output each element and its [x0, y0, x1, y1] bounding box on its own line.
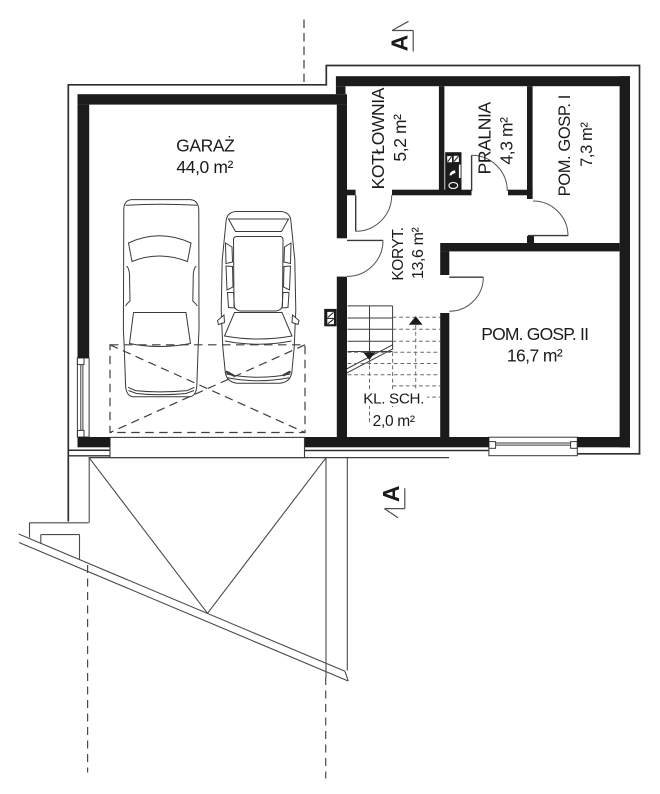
- svg-text:GARAŻ: GARAŻ: [176, 135, 235, 155]
- svg-text:KL. SCH.: KL. SCH.: [363, 391, 424, 408]
- svg-text:A: A: [378, 485, 404, 502]
- svg-text:KOTŁOWNIA: KOTŁOWNIA: [368, 87, 388, 189]
- svg-text:POM. GOSP. II: POM. GOSP. II: [481, 324, 588, 344]
- svg-text:5,2 m²: 5,2 m²: [390, 114, 410, 162]
- svg-text:A: A: [386, 35, 412, 52]
- svg-text:44,0 m²: 44,0 m²: [176, 157, 233, 177]
- svg-text:7,3 m²: 7,3 m²: [578, 122, 596, 167]
- svg-text:16,7 m²: 16,7 m²: [507, 346, 563, 366]
- svg-text:4,3 m²: 4,3 m²: [496, 117, 516, 165]
- svg-text:13,6 m²: 13,6 m²: [410, 227, 427, 280]
- svg-text:2,0 m²: 2,0 m²: [373, 413, 415, 430]
- svg-text:KORYT.: KORYT.: [390, 227, 407, 280]
- svg-text:PRALNIA: PRALNIA: [475, 102, 495, 175]
- svg-text:POM. GOSP. I: POM. GOSP. I: [556, 95, 574, 196]
